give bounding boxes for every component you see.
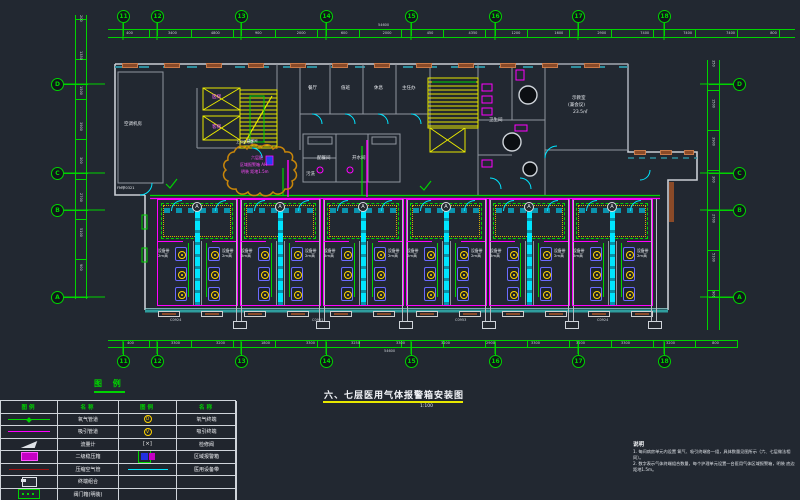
gas-terminal-icon bbox=[341, 287, 353, 301]
gas-terminal-icon bbox=[424, 267, 436, 281]
gas-terminal-icon bbox=[374, 267, 386, 281]
gas-terminal-icon bbox=[175, 287, 187, 301]
legend-name: 氧气终端 bbox=[177, 414, 237, 427]
dimension-value: 4800 bbox=[194, 32, 237, 36]
gas-riser-pipe bbox=[278, 209, 283, 305]
legend-symbol-icon: [×] bbox=[119, 439, 176, 451]
right-wall-hatch bbox=[669, 182, 674, 222]
dimension-value: 800 bbox=[752, 32, 795, 36]
area-alarm-box-symbol bbox=[266, 156, 273, 165]
dimension-value: 1600 bbox=[537, 32, 580, 36]
legend-name bbox=[177, 489, 237, 500]
ward-bay: A 设备带2m高 设备带2m高 bbox=[322, 197, 405, 333]
dimension-value: 3250 bbox=[333, 342, 378, 346]
gas-terminal-icon bbox=[623, 267, 635, 281]
gas-terminal-icon bbox=[540, 267, 552, 281]
wall-hatch-block bbox=[458, 63, 474, 68]
dimension-value: 200 bbox=[79, 15, 83, 51]
grid-bubble: 16 bbox=[489, 10, 502, 23]
legend-symbol-cell bbox=[1, 414, 58, 427]
gas-terminal-icon bbox=[424, 247, 436, 261]
room-front-wall bbox=[323, 241, 349, 242]
legend-heading: 图 例 bbox=[94, 378, 125, 393]
legend-symbol-cell: O bbox=[119, 414, 177, 427]
gas-riser-pipe bbox=[195, 209, 200, 305]
gas-terminal-icon bbox=[457, 247, 469, 261]
dimension-value: 3300 bbox=[513, 342, 558, 346]
equipment-band-label: 设备带2m高 bbox=[407, 249, 418, 258]
riser-tag: A bbox=[441, 202, 451, 212]
plan-label: C0924 bbox=[597, 318, 608, 322]
dimension-value: 3200 bbox=[648, 342, 693, 346]
equipment-band-label: 设备带2m高 bbox=[573, 249, 584, 258]
dimension-value: 2000 bbox=[366, 32, 409, 36]
dimension-value: 3300 bbox=[603, 342, 648, 346]
legend-header: 图例 bbox=[1, 401, 58, 414]
ward-bay: A 设备带2m高 设备带2m高 bbox=[239, 197, 322, 333]
grid-bubble: D bbox=[733, 78, 746, 91]
bay-divider-wall bbox=[651, 199, 657, 328]
legend-symbol-cell bbox=[119, 464, 177, 477]
dimension-value: 300 bbox=[79, 157, 83, 193]
legend-symbol-icon bbox=[1, 439, 57, 451]
gas-terminal-icon bbox=[291, 287, 303, 301]
gas-terminal-icon bbox=[258, 287, 270, 301]
gas-riser-pipe bbox=[361, 209, 366, 305]
wall-hatch-block bbox=[542, 63, 558, 68]
legend-name: 流量计 bbox=[58, 439, 119, 452]
gas-terminal-icon bbox=[623, 287, 635, 301]
gas-terminal-icon bbox=[424, 287, 436, 301]
room-front-wall bbox=[406, 241, 432, 242]
gas-terminal-icon bbox=[291, 247, 303, 261]
equipment-band-label: 设备带2m高 bbox=[554, 249, 565, 258]
dimension-value: 1800 bbox=[243, 342, 288, 346]
dimension-value: 2900 bbox=[580, 32, 623, 36]
grid-bubble: 15 bbox=[405, 355, 418, 368]
plan-label: 主任办 bbox=[402, 86, 416, 92]
dimension-value: 900 bbox=[237, 32, 280, 36]
legend-header: 名称 bbox=[177, 401, 237, 414]
dimension-value: 2000 bbox=[280, 32, 323, 36]
riser-tag: A bbox=[358, 202, 368, 212]
plan-label: 六层配 bbox=[251, 155, 263, 160]
wall-hatch-block bbox=[584, 63, 600, 68]
legend-symbol-icon bbox=[119, 451, 176, 463]
oxygen-branch-pipe bbox=[455, 243, 456, 297]
wall-hatch-block bbox=[206, 63, 222, 68]
dimension-value: 3900 bbox=[79, 122, 83, 158]
interior-walls bbox=[118, 64, 628, 195]
legend-name: 终端组合 bbox=[58, 476, 119, 489]
legend-symbol-icon bbox=[119, 489, 176, 500]
dimension-value: 3200 bbox=[198, 342, 243, 346]
grid-bubble: C bbox=[733, 167, 746, 180]
dimension-value: 600 bbox=[323, 32, 366, 36]
drawing-title: 六、七层医用气体报警箱安装图 bbox=[324, 388, 464, 401]
grid-bubble: 11 bbox=[117, 355, 130, 368]
legend-symbol-icon: V bbox=[119, 426, 176, 438]
note-line: 2. 数字表示气体终端组合数量，每个护理单元设置一台医用气体区域报警箱，明装 底… bbox=[633, 461, 797, 473]
riser-tag: A bbox=[607, 202, 617, 212]
riser-tag: A bbox=[275, 202, 285, 212]
note-line: 1. 每间病房单元内设置 氧气、吸引终端各一组，具体数量见图所示（六、七层做法相… bbox=[633, 449, 797, 461]
dim-string-right: 3501500390030027005100900 bbox=[707, 60, 720, 330]
gas-terminal-icon bbox=[623, 247, 635, 261]
dimension-value: 3200 bbox=[423, 342, 468, 346]
wall-hatch-block bbox=[416, 63, 432, 68]
gas-terminal-icon bbox=[341, 247, 353, 261]
legend-symbol-cell bbox=[119, 489, 177, 500]
equipment-band-label: 设备带2m高 bbox=[305, 249, 316, 258]
legend-name: 吸引终端 bbox=[177, 426, 237, 439]
plan-label: C0924 bbox=[170, 318, 181, 322]
gas-terminal-icon bbox=[258, 267, 270, 281]
equipment-band-label: 设备带2m高 bbox=[490, 249, 501, 258]
legend-symbol-icon bbox=[1, 414, 57, 426]
grid-bubble: 11 bbox=[117, 10, 130, 23]
wall-hatch-block bbox=[164, 63, 180, 68]
dimension-value: 7400 bbox=[709, 32, 752, 36]
oxygen-branch-pipe bbox=[437, 243, 438, 297]
gas-terminal-icon bbox=[208, 267, 220, 281]
dim-string-left: 20013501500390030027005100900 bbox=[75, 15, 87, 299]
grid-bubble: B bbox=[733, 204, 746, 217]
dimension-value: 300 bbox=[712, 176, 716, 215]
legend-symbol-cell bbox=[1, 464, 58, 477]
dimension-value: 4350 bbox=[452, 32, 495, 36]
legend-name bbox=[177, 476, 237, 489]
grid-bubble: A bbox=[733, 291, 746, 304]
legend-symbol-cell: V bbox=[119, 426, 177, 439]
dimension-value: 3300 bbox=[153, 342, 198, 346]
equipment-band-label: 设备带2m高 bbox=[388, 249, 399, 258]
plan-label: 客梯 bbox=[212, 125, 221, 131]
plan-label: FM甲0321 bbox=[117, 186, 134, 190]
plan-label: 休息 bbox=[374, 86, 383, 92]
legend-symbol-cell bbox=[119, 476, 177, 489]
plan-label: 值班 bbox=[341, 86, 350, 92]
riser-tag: A bbox=[192, 202, 202, 212]
dimension-value: 350 bbox=[712, 60, 716, 99]
dimension-value: 3200 bbox=[558, 342, 603, 346]
legend-symbol-cell bbox=[119, 451, 177, 464]
grid-bubble: 16 bbox=[489, 355, 502, 368]
wall-hatch-block bbox=[684, 150, 694, 155]
legend-table: 图例 名称 图例 名称 氧气管道 O 氧气终端 吸引管道 bbox=[0, 400, 236, 500]
gas-terminal-icon bbox=[540, 287, 552, 301]
gas-terminal-icon bbox=[341, 267, 353, 281]
wall-hatch-block bbox=[500, 63, 516, 68]
gas-terminal-icon bbox=[457, 287, 469, 301]
dimension-value: 3900 bbox=[712, 137, 716, 176]
room-front-wall bbox=[157, 241, 183, 242]
legend-symbol-icon: O bbox=[119, 414, 176, 426]
gas-terminal-icon bbox=[291, 267, 303, 281]
gas-terminal-icon bbox=[175, 247, 187, 261]
room-front-wall bbox=[212, 241, 238, 242]
ward-bay: A 设备带2m高 设备带2m高 bbox=[156, 197, 239, 333]
grid-bubble: C bbox=[51, 167, 64, 180]
gas-riser-pipe bbox=[527, 209, 532, 305]
gas-terminal-icon bbox=[507, 267, 519, 281]
oxygen-branch-pipe bbox=[372, 243, 373, 297]
grid-bubble: B bbox=[51, 204, 64, 217]
gas-riser-pipe bbox=[610, 209, 615, 305]
ward-bay: A 设备带2m高 设备带2m高 bbox=[405, 197, 488, 333]
room-front-wall bbox=[378, 241, 404, 242]
ward-bay: A 设备带2m高 设备带2m高 bbox=[488, 197, 571, 333]
legend-header: 名称 bbox=[58, 401, 119, 414]
wall-hatch-block bbox=[660, 150, 672, 155]
grid-bubble: D bbox=[51, 78, 64, 91]
equipment-band-label: 设备带2m高 bbox=[324, 249, 335, 258]
ward-bay: A 设备带2m高 设备带2m高 bbox=[571, 197, 654, 333]
title-underline bbox=[323, 401, 463, 403]
oxygen-branch-pipe bbox=[206, 243, 207, 297]
grid-bubble: 17 bbox=[572, 10, 585, 23]
grid-bubble: A bbox=[51, 291, 64, 304]
room-front-wall bbox=[544, 241, 570, 242]
legend-symbol-cell bbox=[1, 451, 58, 464]
wall-hatch-block bbox=[634, 150, 646, 155]
riser-tag: A bbox=[524, 202, 534, 212]
equipment-band-label: 设备带2m高 bbox=[637, 249, 648, 258]
equipment-band-label: 设备带2m高 bbox=[222, 249, 233, 258]
legend-name: 医用设备带 bbox=[177, 464, 237, 477]
gas-terminal-icon bbox=[374, 247, 386, 261]
plan-label: 示教室 bbox=[572, 96, 586, 102]
dim-string-bottom: 4003300320018003300325033003200290033003… bbox=[108, 340, 738, 348]
legend-symbol-cell bbox=[1, 476, 58, 489]
grid-bubble: 15 bbox=[405, 10, 418, 23]
grid-bubble: 17 bbox=[572, 355, 585, 368]
room-front-wall bbox=[240, 241, 266, 242]
dimension-value: 1500 bbox=[79, 86, 83, 122]
legend-symbol-icon bbox=[119, 464, 176, 476]
wall-hatch-block bbox=[332, 63, 348, 68]
notes-heading: 说明 bbox=[633, 440, 797, 448]
dim-string-top: 4003400480090020006002000450435012001600… bbox=[108, 29, 795, 38]
notes-block: 说明 1. 每间病房单元内设置 氧气、吸引终端各一组，具体数量见图所示（六、七层… bbox=[633, 440, 797, 473]
plan-label: (兼会议) bbox=[568, 103, 585, 109]
legend-symbol-icon bbox=[1, 426, 57, 438]
oxygen-branch-pipe bbox=[621, 243, 622, 297]
plan-label: 23.5㎡ bbox=[573, 110, 588, 116]
dimension-value: 400 bbox=[108, 32, 151, 36]
plan-label: 卫生间 bbox=[489, 118, 503, 124]
leader-arrows bbox=[166, 179, 431, 190]
legend-symbol-icon bbox=[1, 489, 57, 500]
dimension-value: 7400 bbox=[666, 32, 709, 36]
gas-terminal-icon bbox=[590, 287, 602, 301]
oxygen-branch-pipe bbox=[520, 243, 521, 297]
legend-header: 图例 bbox=[119, 401, 177, 414]
legend-name: 二级稳压箱 bbox=[58, 451, 119, 464]
legend-symbol-cell: [×] bbox=[119, 439, 177, 452]
plan-label: 上引至七层 bbox=[236, 140, 254, 144]
legend-symbol-cell bbox=[1, 426, 58, 439]
legend-name: 吸引管道 bbox=[58, 426, 119, 439]
dimension-value: 3300 bbox=[378, 342, 423, 346]
legend-name: 区域报警箱 bbox=[177, 451, 237, 464]
oxygen-branch-pipe bbox=[188, 243, 189, 297]
gas-terminal-icon bbox=[374, 287, 386, 301]
legend-name: 阀门箱(明装) bbox=[58, 489, 119, 500]
dimension-value: 800 bbox=[693, 342, 738, 346]
gas-riser-pipe bbox=[444, 209, 449, 305]
grid-bubble: 13 bbox=[235, 10, 248, 23]
dimension-value: 2900 bbox=[468, 342, 513, 346]
gas-terminal-icon bbox=[540, 247, 552, 261]
oxygen-branch-pipe bbox=[289, 243, 290, 297]
room-front-wall bbox=[489, 241, 515, 242]
plan-label: 开水间 bbox=[352, 156, 366, 162]
plan-label: 明装 距地1.5m bbox=[241, 169, 269, 174]
grid-bubble: 18 bbox=[658, 10, 671, 23]
dimension-value: 900 bbox=[79, 264, 83, 300]
gas-terminal-icon bbox=[175, 267, 187, 281]
dim-total-bottom: 54600 bbox=[384, 349, 395, 353]
legend-name: 氧气管道 bbox=[58, 414, 119, 427]
plan-label: C0951 bbox=[312, 318, 323, 322]
oxygen-branch-pipe bbox=[603, 243, 604, 297]
plan-label: 配餐间 bbox=[317, 156, 331, 162]
oxygen-branch-pipe bbox=[354, 243, 355, 297]
gas-terminal-icon bbox=[590, 247, 602, 261]
equipment-band-label: 设备带2m高 bbox=[241, 249, 252, 258]
dimension-value: 2700 bbox=[712, 214, 716, 253]
plan-label: 医梯 bbox=[212, 95, 221, 101]
legend-name: 压缩空气管 bbox=[58, 464, 119, 477]
cad-canvas[interactable]: A 设备带2m高 设备带2m高 bbox=[0, 0, 800, 500]
gas-terminal-icon bbox=[457, 267, 469, 281]
grid-bubble: 12 bbox=[151, 10, 164, 23]
grid-bubble: 13 bbox=[235, 355, 248, 368]
plan-label: 污洗 bbox=[306, 172, 315, 178]
legend-symbol-cell bbox=[1, 439, 58, 452]
legend-symbol-icon bbox=[1, 451, 57, 463]
plan-label: 区域报警箱 AH bbox=[240, 162, 267, 167]
legend-symbol-cell bbox=[1, 489, 58, 500]
grid-bubble: 18 bbox=[658, 355, 671, 368]
legend-name: 检修阀 bbox=[177, 439, 237, 452]
gas-terminal-icon bbox=[590, 267, 602, 281]
room-front-wall bbox=[627, 241, 653, 242]
drawing-scale: 1:100 bbox=[420, 404, 433, 409]
legend-symbol-icon bbox=[1, 476, 57, 488]
room-front-wall bbox=[295, 241, 321, 242]
dim-total-top: 54600 bbox=[378, 23, 389, 27]
plan-label: C0953 bbox=[455, 318, 466, 322]
gas-terminal-icon bbox=[208, 247, 220, 261]
wall-hatch-block bbox=[374, 63, 390, 68]
legend-symbol-icon bbox=[119, 476, 176, 488]
gas-terminal-icon bbox=[507, 287, 519, 301]
oxygen-branch-pipe bbox=[271, 243, 272, 297]
dimension-value: 5100 bbox=[79, 228, 83, 264]
grid-bubble: 14 bbox=[320, 10, 333, 23]
plan-label: 空调机房 bbox=[124, 122, 142, 128]
dimension-value: 1500 bbox=[712, 99, 716, 138]
gas-terminal-icon bbox=[208, 287, 220, 301]
oxygen-branch-pipe bbox=[538, 243, 539, 297]
legend-symbol-icon bbox=[1, 464, 57, 476]
dimension-value: 400 bbox=[108, 342, 153, 346]
dimension-value: 1350 bbox=[79, 51, 83, 87]
dimension-value: 5100 bbox=[712, 253, 716, 292]
equipment-band-label: 设备带2m高 bbox=[471, 249, 482, 258]
wall-hatch-block bbox=[248, 63, 264, 68]
wall-hatch-block bbox=[290, 63, 306, 68]
room-front-wall bbox=[461, 241, 487, 242]
dimension-value: 7400 bbox=[623, 32, 666, 36]
grid-bubble: 14 bbox=[320, 355, 333, 368]
plan-label: 餐厅 bbox=[308, 86, 317, 92]
grid-bubble: 12 bbox=[151, 355, 164, 368]
dimension-value: 450 bbox=[409, 32, 452, 36]
wall-hatch-block bbox=[122, 63, 138, 68]
gas-terminal-icon bbox=[258, 247, 270, 261]
equipment-band-label: 设备带2m高 bbox=[158, 249, 169, 258]
gas-terminal-icon bbox=[507, 247, 519, 261]
room-front-wall bbox=[572, 241, 598, 242]
dimension-value: 1200 bbox=[494, 32, 537, 36]
